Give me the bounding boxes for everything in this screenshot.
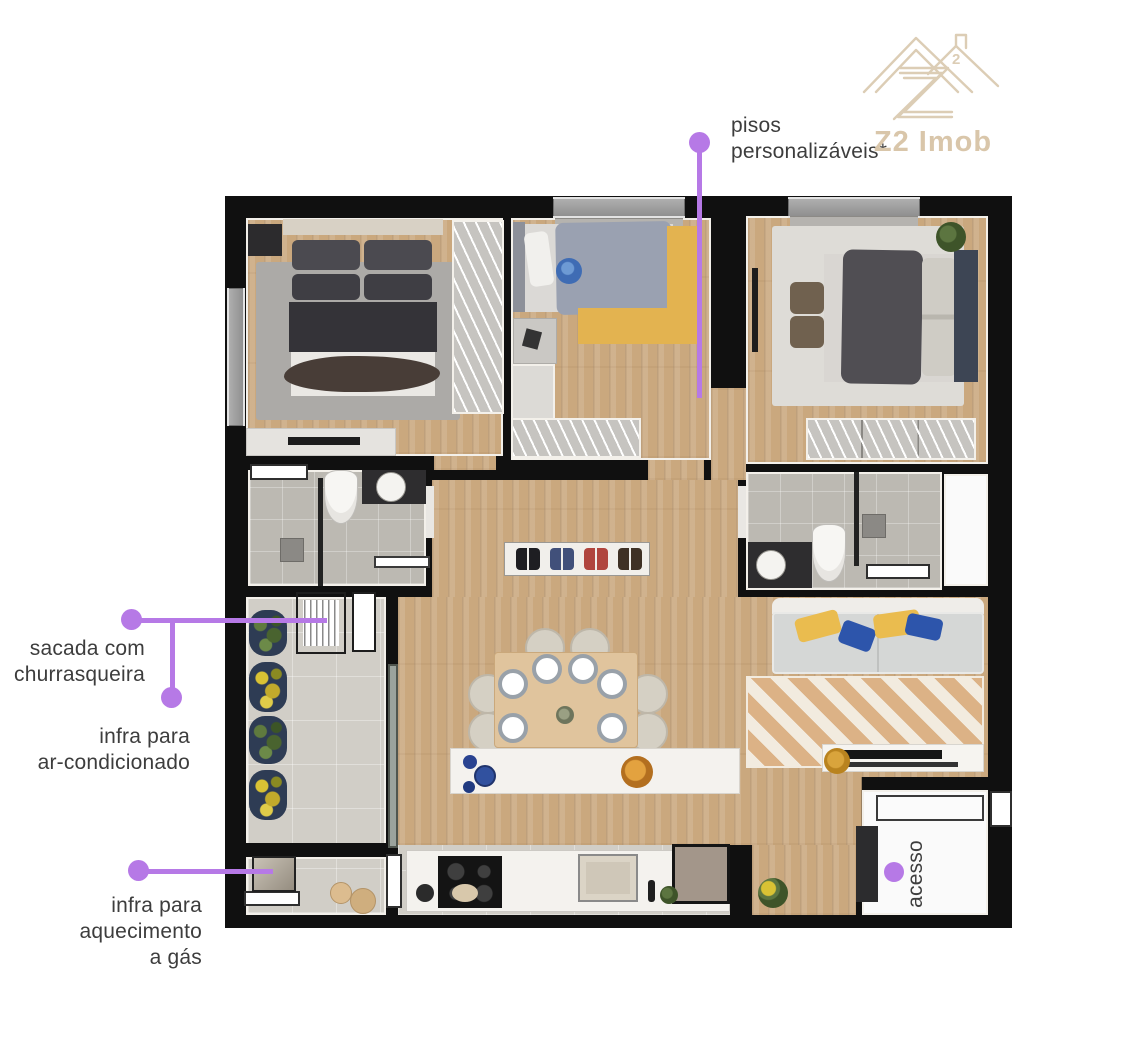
service-area-wall: [246, 843, 386, 857]
soundbar: [834, 762, 958, 767]
blue-bowl: [463, 755, 477, 769]
window-left-bedroom: [227, 288, 245, 426]
annotation-dot-sacada: [121, 609, 142, 630]
refrigerator: [672, 844, 730, 904]
bedroom-right-ottoman: [790, 282, 824, 314]
logo-sup: 2: [952, 51, 960, 68]
place-setting: [532, 654, 562, 684]
label-line: churrasqueira: [0, 662, 145, 688]
window-bathroom-right: [866, 564, 930, 579]
window-kitchen-side: [386, 854, 402, 908]
bathroom-left-door-opening: [426, 486, 434, 538]
balcony-glass-door: [388, 664, 398, 848]
label-line: infra para: [0, 724, 190, 750]
window-top-middle: [553, 197, 685, 218]
floorplan-canvas: pisos personalizáveis* sacada com churra…: [0, 0, 1125, 1044]
shower-divider: [318, 478, 323, 586]
bed-right-headboard: [954, 250, 978, 382]
sink-basin: [756, 550, 786, 580]
entry-door: [876, 795, 984, 821]
place-setting: [568, 654, 598, 684]
annotation-line-aquecimento: [139, 869, 273, 874]
table-vase: [556, 706, 574, 724]
window-top-right: [788, 197, 920, 218]
balcony-counter: [352, 592, 376, 652]
bedroom-left-nightstand: [248, 224, 282, 256]
shower-drain: [280, 538, 304, 562]
bedroom-left-wardrobe: [452, 220, 504, 414]
wine-bottle: [648, 880, 655, 902]
shoes-pair: [618, 548, 642, 570]
bedroom-left-door-opening: [434, 456, 496, 470]
label-line: a gás: [0, 945, 202, 971]
shaft-area: [944, 474, 988, 586]
bedroom-middle-door-opening: [648, 460, 704, 480]
churrasqueira-grill: [296, 592, 346, 654]
balcony-planter: [249, 770, 287, 820]
bed-left-duvet: [289, 302, 437, 352]
label-sacada-churrasqueira: sacada com churrasqueira: [0, 636, 145, 688]
frying-pan: [416, 884, 434, 902]
window-service-area: [244, 891, 300, 906]
label-line: infra para: [0, 893, 202, 919]
label-infra-ar-condicionado: infra para ar-condicionado: [0, 724, 190, 776]
label-line: ar-condicionado: [0, 750, 190, 776]
bed-left-pillow: [364, 240, 432, 270]
shower-drain: [862, 514, 886, 538]
bedroom-right-wall-tv: [752, 268, 758, 352]
bedroom-middle-closet-bottom: [511, 418, 641, 458]
bed-left-pillow: [364, 274, 432, 300]
bathroom-right-door-opening: [738, 486, 746, 538]
shower-divider: [854, 472, 859, 566]
yellow-runner-horizontal: [578, 308, 697, 344]
sink-basin: [376, 472, 406, 502]
bed-left-pillow: [292, 240, 360, 270]
corner-plant: [758, 878, 788, 908]
gas-water-heater: [252, 856, 296, 892]
bed-middle-headboard: [513, 222, 525, 312]
blue-bowl: [474, 765, 496, 787]
balcony-planter: [249, 662, 287, 712]
cutting-board: [452, 884, 478, 902]
annotation-line-pisos: [697, 143, 702, 398]
bed-right-duvet: [841, 249, 923, 384]
television: [842, 750, 942, 759]
entry-doormat: [856, 826, 878, 902]
label-acesso: acesso: [886, 834, 946, 914]
shoes-pair: [550, 548, 574, 570]
shoes-pair: [584, 548, 608, 570]
wooden-stool: [330, 882, 352, 904]
bed-left-throw-blanket: [284, 356, 440, 392]
shoes-pair: [516, 548, 540, 570]
bedroom-left-tv: [288, 437, 360, 445]
bed-middle-round-cushion: [556, 258, 582, 284]
fruit-bowl: [621, 756, 653, 788]
wooden-stool: [350, 888, 376, 914]
place-setting: [597, 669, 627, 699]
label-line: sacada com: [0, 636, 145, 662]
bedroom-right-door-opening: [711, 388, 746, 480]
annotation-dot-ar-condicionado: [161, 687, 182, 708]
logo-house-icon: 2: [858, 22, 1008, 122]
toilet: [812, 524, 846, 582]
balcony-planter: [249, 610, 287, 656]
bedroom-right-closet: [806, 418, 976, 460]
balcony-planter: [249, 716, 287, 764]
place-setting: [498, 713, 528, 743]
kitchen-sink: [578, 854, 638, 902]
annotation-dot-aquecimento: [128, 860, 149, 881]
bed-left-pillow: [292, 274, 360, 300]
window-entry-side: [990, 791, 1012, 827]
kitchen-plant: [660, 886, 678, 904]
brand-logo: 2 Z2 Imob: [858, 22, 1008, 159]
place-setting: [597, 713, 627, 743]
annotation-dot-pisos: [689, 132, 710, 153]
place-setting: [498, 669, 528, 699]
bedroom-right-ottoman: [790, 316, 824, 348]
label-acesso-text: acesso: [903, 840, 929, 908]
logo-brand-text: Z2 Imob: [858, 126, 1008, 159]
hallway-floor: [432, 480, 738, 600]
towel-shelf: [374, 556, 430, 568]
console-plant: [824, 748, 850, 774]
bedroom-right-plant: [936, 222, 966, 252]
annotation-line-sacada-h: [132, 618, 327, 623]
window-bathroom-left: [250, 464, 308, 480]
bed-left-headboard: [283, 219, 443, 235]
blue-bowl: [463, 781, 475, 793]
label-infra-aquecimento-gas: infra para aquecimento a gás: [0, 893, 202, 971]
label-line: aquecimento: [0, 919, 202, 945]
bed-right-pillows: [922, 258, 956, 376]
